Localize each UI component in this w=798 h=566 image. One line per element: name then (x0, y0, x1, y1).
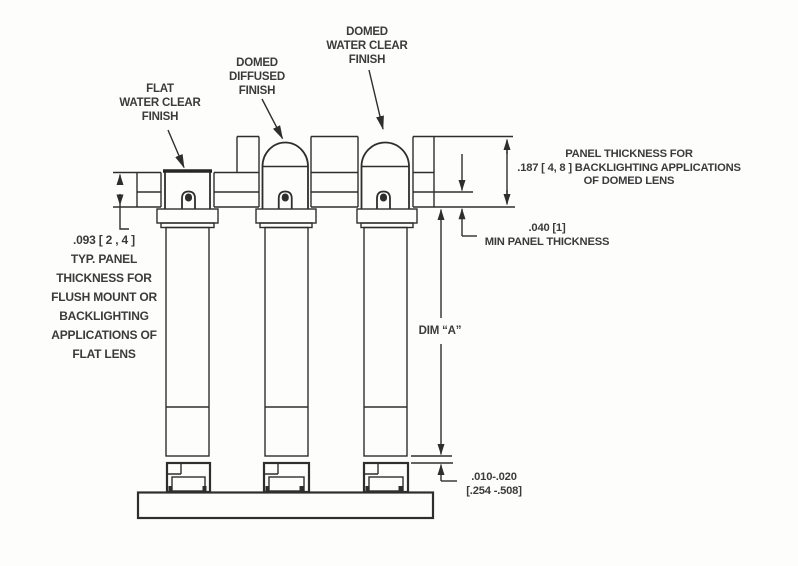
note-line: PANEL THICKNESS FOR (517, 148, 740, 162)
indicator-flat-lens (157, 171, 218, 492)
note-line: .187 [ 4, 8 ] BACKLIGHTING APPLICATIONS (517, 162, 740, 176)
note-line: BACKLIGHTING (51, 307, 157, 326)
note-line: .040 [1] (485, 222, 609, 236)
indicator-domed-diffused (256, 143, 316, 493)
indicator-domed-water-clear (357, 143, 417, 493)
note-line: .093 [ 2 , 4 ] (51, 231, 157, 250)
domed-water-clear-leader-arrow (369, 70, 383, 129)
dim-a-text: DIM “A” (416, 324, 465, 338)
callout-line: DOMED (229, 56, 285, 70)
note-line: FLUSH MOUNT OR (51, 288, 157, 307)
note-line: APPLICATIONS OF (51, 326, 157, 345)
threaded-body (265, 228, 308, 457)
threaded-body (166, 228, 209, 457)
note-line: TYP. PANEL (51, 250, 157, 269)
mounting-nut (357, 209, 417, 223)
note-line: FLAT LENS (51, 345, 157, 364)
note-line: MIN PANEL THICKNESS (485, 236, 609, 250)
terminal-block (364, 463, 408, 492)
callout-domed-water-clear: DOMED WATER CLEAR FINISH (326, 25, 407, 67)
label-dim-a: DIM “A” (416, 324, 465, 338)
technical-drawing-panel-indicators: DOMED WATER CLEAR FINISH DOMED DIFFUSED … (0, 0, 798, 566)
dimension-093 (120, 175, 129, 230)
note-line: THICKNESS FOR (51, 269, 157, 288)
note-line: .010-.020 (466, 471, 521, 485)
callout-line: FINISH (119, 110, 200, 124)
mounting-nut (157, 209, 218, 223)
callout-line: FINISH (229, 84, 285, 98)
note-standoff-gap: .010-.020 [.254 -.508] (466, 471, 521, 498)
callout-flat-lens: FLAT WATER CLEAR FINISH (119, 82, 200, 124)
mounting-nut (256, 209, 316, 223)
callout-line: WATER CLEAR (326, 39, 407, 53)
callout-line: FINISH (326, 53, 407, 67)
callout-line: FLAT (119, 82, 200, 96)
note-line: OF DOMED LENS (517, 175, 740, 189)
dimension-040 (462, 154, 477, 236)
note-flat-panel-thickness: .093 [ 2 , 4 ] TYP. PANEL THICKNESS FOR … (51, 231, 157, 364)
callout-line: DOMED (326, 25, 407, 39)
dimension-standoff-gap (411, 456, 457, 481)
note-line: [.254 -.508] (466, 485, 521, 499)
callout-line: WATER CLEAR (119, 96, 200, 110)
callout-line: DIFFUSED (229, 70, 285, 84)
domed-diffused-leader-arrow (262, 99, 283, 139)
terminal-block (167, 463, 210, 492)
note-domed-panel-thickness: PANEL THICKNESS FOR .187 [ 4, 8 ] BACKLI… (517, 148, 740, 189)
terminal-block (264, 463, 309, 492)
threaded-body (364, 228, 407, 457)
note-min-panel-thickness: .040 [1] MIN PANEL THICKNESS (485, 222, 609, 249)
flat-lens-leader-arrow (168, 130, 184, 168)
base-strip (138, 493, 433, 519)
callout-domed-diffused: DOMED DIFFUSED FINISH (229, 56, 285, 98)
